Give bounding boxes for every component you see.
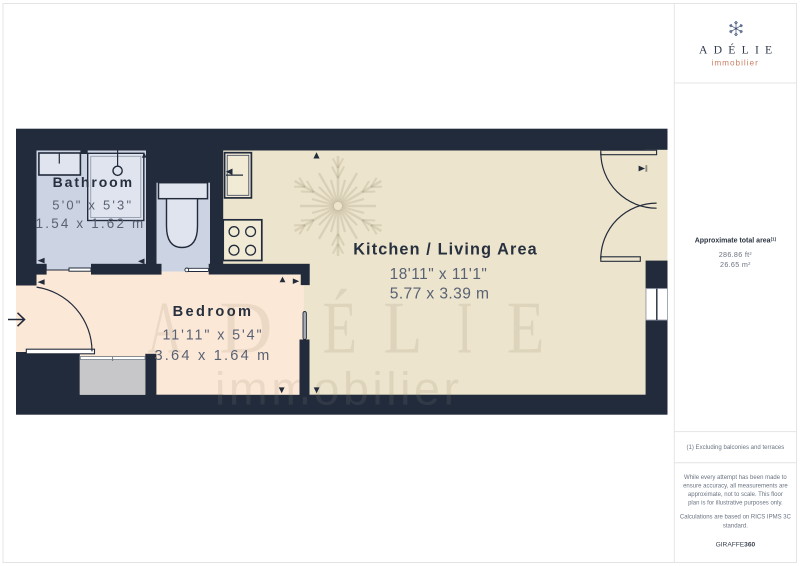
svg-text:plan is for illustrative purpo: plan is for illustrative purposes only.	[688, 500, 783, 506]
svg-text:É: É	[323, 288, 358, 370]
svg-text:GIRAFFE360: GIRAFFE360	[716, 541, 756, 548]
svg-text:While every attempt has been m: While every attempt has been made to	[684, 475, 787, 481]
svg-text:(1) Excluding balconies and te: (1) Excluding balconies and terraces	[686, 445, 784, 451]
svg-text:Bedroom: Bedroom	[173, 304, 254, 320]
svg-text:approximate, not to scale. Thi: approximate, not to scale. This floor	[688, 492, 783, 498]
svg-text:286.86 ft2: 286.86 ft2	[719, 250, 753, 259]
svg-text:ADÉLIE: ADÉLIE	[699, 43, 778, 57]
svg-text:Bathroom: Bathroom	[53, 174, 134, 190]
svg-text:ensure accuracy, all measureme: ensure accuracy, all measurements are	[683, 484, 788, 490]
svg-text:3.64 x 1.64 m: 3.64 x 1.64 m	[154, 348, 271, 364]
svg-text:5.77 x 3.39 m: 5.77 x 3.39 m	[390, 286, 490, 303]
svg-text:Kitchen / Living Area: Kitchen / Living Area	[353, 240, 538, 258]
svg-text:standard.: standard.	[723, 523, 748, 529]
svg-text:Approximate total area(1): Approximate total area(1)	[695, 237, 777, 245]
svg-text:immobilier: immobilier	[712, 59, 759, 68]
svg-text:11'11" x 5'4": 11'11" x 5'4"	[163, 328, 264, 344]
svg-text:1.54 x 1.62 m: 1.54 x 1.62 m	[36, 216, 146, 231]
svg-text:Calculations are based on RICS: Calculations are based on RICS IPMS 3C	[680, 515, 792, 521]
svg-text:26.65 m2: 26.65 m2	[720, 260, 751, 269]
svg-text:E: E	[507, 288, 545, 370]
svg-text:5'0" x 5'3": 5'0" x 5'3"	[52, 198, 133, 213]
svg-text:18'11" x 11'1": 18'11" x 11'1"	[390, 266, 488, 283]
